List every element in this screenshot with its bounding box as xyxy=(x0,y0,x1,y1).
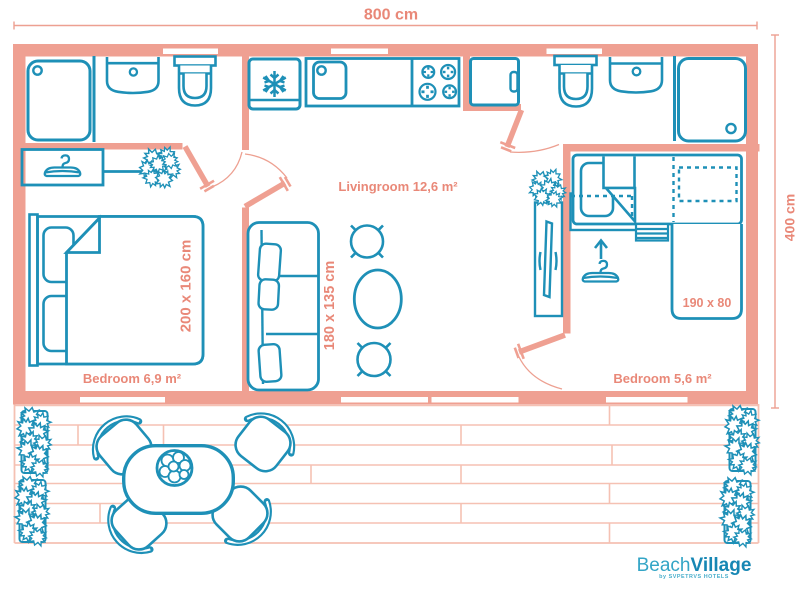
svg-text:Bedroom 6,9 m²: Bedroom 6,9 m² xyxy=(83,371,182,386)
svg-text:400 cm: 400 cm xyxy=(782,194,798,241)
svg-text:Bedroom 5,6 m²: Bedroom 5,6 m² xyxy=(613,371,712,386)
svg-text:by SVPETRVS HOTELS: by SVPETRVS HOTELS xyxy=(659,574,729,580)
svg-text:BeachVillage: BeachVillage xyxy=(637,555,752,576)
svg-text:180 x 135 cm: 180 x 135 cm xyxy=(322,261,338,351)
svg-text:190 x 80: 190 x 80 xyxy=(683,296,732,310)
svg-text:800 cm: 800 cm xyxy=(364,7,418,24)
svg-text:200 x 160 cm: 200 x 160 cm xyxy=(178,240,195,333)
svg-text:Livingroom 12,6 m²: Livingroom 12,6 m² xyxy=(338,179,458,194)
